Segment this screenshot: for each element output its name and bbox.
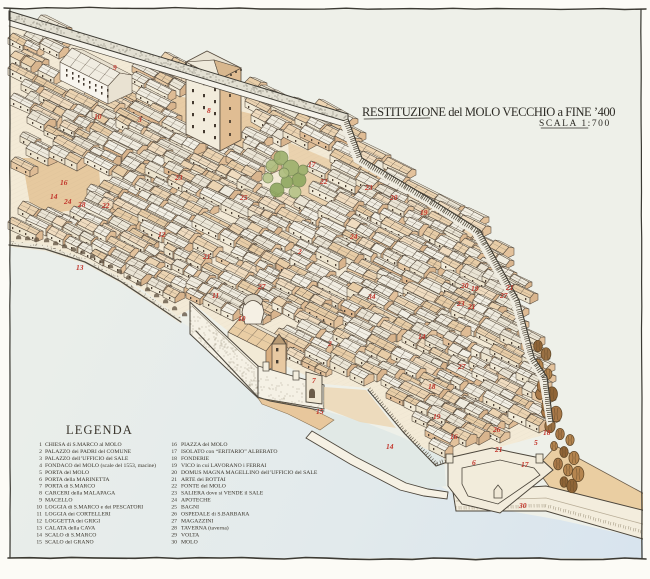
svg-text:OSPEDALE di S.BARBARA: OSPEDALE di S.BARBARA — [181, 512, 250, 518]
svg-text:24: 24 — [171, 498, 177, 504]
svg-text:LOGGIA dei CORTELLERI: LOGGIA dei CORTELLERI — [45, 512, 111, 518]
svg-text:2: 2 — [327, 339, 332, 348]
svg-text:2: 2 — [39, 449, 42, 455]
svg-text:PORTA di S.MARCO: PORTA di S.MARCO — [45, 484, 95, 490]
svg-text:17: 17 — [171, 449, 177, 455]
svg-text:14: 14 — [418, 332, 426, 341]
svg-text:3: 3 — [39, 456, 42, 462]
svg-text:20: 20 — [171, 470, 177, 476]
svg-text:23: 23 — [364, 183, 373, 192]
svg-text:27: 27 — [457, 362, 466, 371]
svg-text:29: 29 — [171, 532, 177, 538]
svg-text:27: 27 — [257, 282, 266, 291]
svg-text:16: 16 — [60, 178, 68, 187]
svg-text:17: 17 — [521, 460, 529, 469]
svg-text:19: 19 — [471, 284, 479, 293]
svg-text:LOGGETTA dei GRIGI: LOGGETTA dei GRIGI — [45, 519, 100, 525]
svg-text:FONDACO del MOLO (scale del 15: FONDACO del MOLO (scale del 1553, macine… — [45, 462, 156, 469]
svg-text:12: 12 — [158, 230, 166, 239]
svg-text:18: 18 — [171, 456, 177, 462]
svg-text:11: 11 — [37, 512, 43, 518]
svg-text:CARCERI della MALAPAGA: CARCERI della MALAPAGA — [45, 491, 116, 497]
svg-text:LEGENDA: LEGENDA — [66, 423, 133, 437]
svg-text:FONTE del MOLO: FONTE del MOLO — [181, 484, 226, 490]
svg-text:VOLTA: VOLTA — [181, 532, 200, 538]
svg-text:8: 8 — [207, 106, 211, 115]
svg-text:9: 9 — [39, 498, 42, 504]
svg-text:26: 26 — [492, 425, 501, 434]
svg-text:15: 15 — [316, 407, 324, 416]
svg-text:25: 25 — [239, 193, 248, 202]
svg-text:24: 24 — [349, 232, 358, 241]
svg-text:20: 20 — [389, 193, 398, 202]
svg-text:6: 6 — [472, 458, 476, 467]
svg-text:SCALA 1:700: SCALA 1:700 — [539, 119, 610, 129]
svg-text:14: 14 — [386, 442, 394, 451]
svg-text:FONDERIE: FONDERIE — [181, 456, 210, 462]
svg-text:30: 30 — [171, 539, 177, 545]
svg-text:10: 10 — [238, 314, 246, 323]
svg-text:TAVERNA (taverna): TAVERNA (taverna) — [181, 524, 229, 531]
svg-text:VICO in cui LAVORANO i FERRAI: VICO in cui LAVORANO i FERRAI — [181, 463, 266, 469]
svg-text:19: 19 — [420, 208, 428, 217]
svg-text:8: 8 — [39, 491, 42, 497]
svg-text:5: 5 — [39, 470, 42, 476]
svg-text:22: 22 — [171, 484, 177, 490]
svg-text:1: 1 — [39, 442, 42, 448]
svg-text:10: 10 — [94, 112, 102, 121]
svg-text:MACELLO: MACELLO — [45, 498, 73, 504]
svg-text:21: 21 — [467, 302, 476, 311]
svg-text:20: 20 — [460, 281, 469, 290]
svg-text:CHIESA di S.MARCO al MOLO: CHIESA di S.MARCO al MOLO — [45, 442, 122, 448]
svg-text:19: 19 — [171, 463, 177, 469]
svg-text:RESTITUZIONE del MOLO VECCHIO: RESTITUZIONE del MOLO VECCHIO a FINE ’40… — [362, 105, 616, 119]
svg-text:15: 15 — [36, 539, 42, 545]
svg-text:SCALO del GRANO: SCALO del GRANO — [45, 539, 94, 545]
svg-text:23: 23 — [171, 491, 177, 497]
svg-text:27: 27 — [499, 291, 508, 300]
svg-text:12: 12 — [36, 519, 42, 525]
svg-text:SCALO di S.MARCO: SCALO di S.MARCO — [45, 532, 96, 538]
svg-text:9: 9 — [113, 63, 117, 72]
svg-text:MOLO: MOLO — [181, 539, 198, 545]
svg-text:MAGAZZINI: MAGAZZINI — [181, 519, 213, 525]
svg-text:7: 7 — [39, 484, 42, 490]
svg-text:21: 21 — [505, 283, 514, 292]
svg-text:22: 22 — [101, 201, 110, 210]
svg-text:PALAZZO dei PADRI del COMUNE: PALAZZO dei PADRI del COMUNE — [45, 449, 132, 455]
svg-text:13: 13 — [36, 525, 42, 531]
svg-text:13: 13 — [76, 263, 84, 272]
svg-text:18: 18 — [543, 428, 551, 437]
svg-text:18: 18 — [428, 382, 436, 391]
svg-text:10: 10 — [36, 505, 42, 511]
svg-text:19: 19 — [433, 412, 441, 421]
svg-text:28: 28 — [171, 525, 177, 531]
svg-text:21: 21 — [171, 477, 177, 483]
svg-text:APOTECHE: APOTECHE — [181, 498, 211, 504]
svg-text:16: 16 — [171, 442, 177, 448]
svg-text:4: 4 — [39, 463, 42, 469]
svg-text:11: 11 — [212, 291, 219, 300]
svg-text:21: 21 — [494, 445, 503, 454]
svg-text:21: 21 — [202, 252, 211, 261]
svg-text:2: 2 — [297, 247, 302, 256]
svg-text:6: 6 — [39, 477, 42, 483]
svg-text:PIAZZA del MOLO: PIAZZA del MOLO — [181, 442, 227, 448]
svg-text:DOMUS MAGNA MAGELLINO dell’UFF: DOMUS MAGNA MAGELLINO dell’UFFICIO del S… — [181, 470, 318, 476]
svg-text:16: 16 — [450, 432, 458, 441]
svg-text:ARTE dei BOTTAI: ARTE dei BOTTAI — [181, 477, 226, 483]
svg-text:30: 30 — [518, 501, 527, 510]
svg-text:23: 23 — [174, 173, 183, 182]
svg-text:SALIERA dove si VENDE il SALE: SALIERA dove si VENDE il SALE — [181, 491, 264, 497]
svg-text:14: 14 — [50, 192, 58, 201]
svg-text:17: 17 — [308, 160, 316, 169]
svg-text:PORTA del MOLO: PORTA del MOLO — [45, 470, 89, 476]
svg-text:BAGNI: BAGNI — [181, 505, 199, 511]
svg-text:PALAZZO dell’UFFICIO del SALE: PALAZZO dell’UFFICIO del SALE — [45, 456, 129, 462]
svg-text:23: 23 — [456, 299, 465, 308]
svg-text:3: 3 — [137, 115, 142, 124]
svg-text:22: 22 — [319, 177, 328, 186]
svg-text:28: 28 — [77, 200, 86, 209]
svg-text:PORTA della MARINETTA: PORTA della MARINETTA — [45, 477, 110, 483]
svg-text:5: 5 — [534, 438, 538, 447]
svg-text:CALATA della CAVA: CALATA della CAVA — [45, 525, 96, 531]
svg-text:25: 25 — [171, 505, 177, 511]
svg-text:26: 26 — [171, 512, 177, 518]
svg-text:24: 24 — [63, 197, 72, 206]
svg-text:LOGGIA di S.MARCO e dei PESCAT: LOGGIA di S.MARCO e dei PESCATORI — [45, 505, 143, 511]
svg-text:34: 34 — [367, 292, 376, 301]
svg-text:14: 14 — [36, 532, 42, 538]
svg-text:7: 7 — [312, 376, 316, 385]
svg-text:ISOLATO con “ERITARIO” ALBERAT: ISOLATO con “ERITARIO” ALBERATO — [181, 448, 277, 455]
svg-text:27: 27 — [171, 519, 177, 525]
